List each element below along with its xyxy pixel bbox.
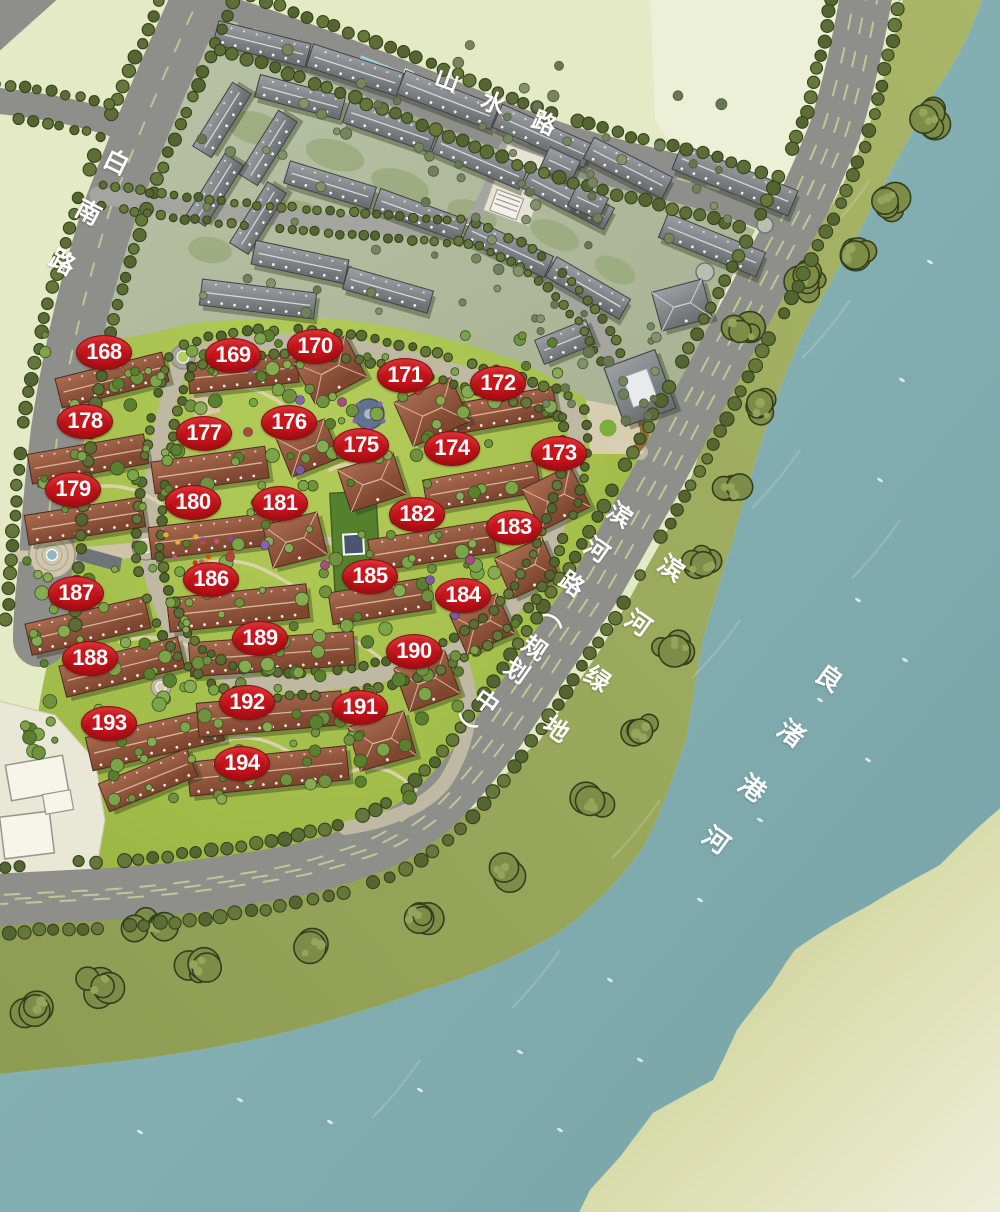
tree xyxy=(34,570,43,579)
tree xyxy=(353,612,362,621)
street-tree xyxy=(60,238,71,249)
street-tree xyxy=(122,64,135,77)
tree xyxy=(561,384,570,393)
tree xyxy=(319,569,329,579)
street-tree xyxy=(73,856,84,867)
tree xyxy=(716,99,727,110)
street-tree xyxy=(104,99,115,110)
tree xyxy=(234,753,242,761)
tree xyxy=(317,395,330,408)
tree xyxy=(261,520,270,529)
tree xyxy=(131,367,140,376)
street-tree xyxy=(158,562,169,573)
tree xyxy=(459,299,466,306)
tree xyxy=(239,660,252,673)
street-tree xyxy=(381,798,392,809)
street-tree xyxy=(69,208,80,219)
street-tree xyxy=(449,380,458,389)
tree xyxy=(327,351,335,359)
street-tree xyxy=(580,462,589,471)
street-tree xyxy=(627,446,640,459)
street-tree xyxy=(4,567,17,580)
street-tree xyxy=(815,50,826,61)
street-tree xyxy=(385,41,397,53)
street-tree xyxy=(574,499,583,508)
flower-bed xyxy=(228,550,233,555)
tree xyxy=(317,109,327,119)
tree xyxy=(487,235,496,244)
street-tree xyxy=(537,581,547,591)
tree xyxy=(174,506,181,513)
street-tree xyxy=(580,405,590,415)
street-tree xyxy=(618,458,631,471)
street-tree xyxy=(0,862,11,873)
street-tree xyxy=(132,514,141,523)
tree xyxy=(619,389,629,399)
street-tree xyxy=(516,372,526,382)
street-tree xyxy=(199,913,212,926)
street-tree xyxy=(796,267,810,281)
street-tree xyxy=(836,198,847,209)
tree xyxy=(552,368,562,378)
flower-bed xyxy=(216,576,221,581)
street-tree xyxy=(383,338,391,346)
street-tree xyxy=(432,348,442,358)
street-tree xyxy=(437,63,450,76)
street-tree xyxy=(11,496,22,507)
street-tree xyxy=(559,300,568,309)
street-tree xyxy=(145,189,153,197)
street-tree xyxy=(388,364,398,374)
street-tree xyxy=(531,594,541,604)
tree xyxy=(644,411,653,420)
street-tree xyxy=(679,490,691,502)
tree xyxy=(366,550,373,557)
street-tree xyxy=(179,385,187,393)
street-tree xyxy=(453,68,464,79)
flower-bed xyxy=(200,537,205,542)
street-tree xyxy=(808,76,820,88)
street-tree xyxy=(436,665,446,675)
tree xyxy=(493,264,504,275)
street-tree xyxy=(84,442,96,454)
tree xyxy=(399,739,412,752)
tree xyxy=(673,91,683,101)
tree xyxy=(251,499,259,507)
street-tree xyxy=(486,785,500,799)
tree xyxy=(124,399,137,412)
street-tree xyxy=(556,468,566,478)
street-tree xyxy=(538,381,549,392)
street-tree xyxy=(528,244,537,253)
street-tree xyxy=(192,79,206,93)
street-tree xyxy=(796,117,808,129)
street-tree xyxy=(180,215,189,224)
street-tree xyxy=(552,384,561,393)
tree xyxy=(128,794,136,802)
tree xyxy=(457,174,465,182)
street-tree xyxy=(395,654,404,663)
street-tree xyxy=(28,356,41,369)
street-tree xyxy=(280,349,289,358)
street-tree xyxy=(158,506,167,515)
street-tree xyxy=(702,454,713,465)
street-tree xyxy=(477,797,491,811)
street-tree xyxy=(680,207,692,219)
tree xyxy=(428,166,438,176)
tree-clump xyxy=(174,948,221,983)
street-tree xyxy=(443,239,450,246)
tree xyxy=(603,134,610,141)
street-tree xyxy=(504,589,514,599)
tree xyxy=(503,134,512,143)
tree xyxy=(302,757,311,766)
street-tree xyxy=(0,613,12,626)
tree xyxy=(456,492,464,500)
street-tree xyxy=(785,291,799,305)
tree xyxy=(386,530,395,539)
tree xyxy=(43,695,57,709)
street-tree xyxy=(169,432,178,441)
street-tree xyxy=(606,484,619,497)
street-tree xyxy=(665,518,676,529)
flower-bed xyxy=(205,572,210,577)
street-tree xyxy=(496,150,509,163)
tree xyxy=(355,776,366,787)
street-tree xyxy=(426,845,439,858)
flower-bed xyxy=(206,554,211,559)
tree xyxy=(581,311,587,317)
street-tree xyxy=(71,575,83,587)
flower-tree xyxy=(321,561,330,570)
street-tree xyxy=(128,50,142,64)
tree xyxy=(407,506,414,513)
tree xyxy=(344,735,355,746)
street-tree xyxy=(463,710,475,722)
tree xyxy=(145,368,152,375)
tree xyxy=(328,393,336,401)
street-tree xyxy=(307,326,317,336)
street-tree xyxy=(143,209,151,217)
street-tree xyxy=(156,543,164,551)
street-tree xyxy=(42,298,54,310)
tree xyxy=(371,245,380,254)
street-tree xyxy=(358,30,370,42)
tree xyxy=(149,564,157,572)
street-tree xyxy=(525,735,538,748)
street-tree xyxy=(213,910,227,924)
street-tree xyxy=(564,392,572,400)
street-tree xyxy=(153,915,167,929)
tree xyxy=(140,755,148,763)
street-tree xyxy=(545,570,555,580)
flower-bed xyxy=(163,532,168,537)
street-tree xyxy=(569,551,581,563)
tree xyxy=(43,573,52,582)
street-tree xyxy=(142,24,154,36)
street-tree xyxy=(437,745,449,757)
tree xyxy=(410,449,423,462)
street-tree xyxy=(585,337,594,346)
tree xyxy=(198,709,212,723)
street-tree xyxy=(19,401,32,414)
tree xyxy=(225,147,236,158)
tree xyxy=(266,362,280,376)
street-tree xyxy=(170,191,178,199)
tree xyxy=(40,346,51,357)
street-tree xyxy=(475,241,483,249)
street-tree xyxy=(188,363,197,372)
street-tree xyxy=(846,169,859,182)
street-tree xyxy=(274,900,287,913)
street-tree xyxy=(790,130,803,143)
tree xyxy=(52,737,58,743)
tree xyxy=(314,670,326,682)
tree xyxy=(231,458,239,466)
tree xyxy=(139,638,150,649)
street-tree xyxy=(487,248,494,255)
street-tree xyxy=(342,27,354,39)
tree xyxy=(376,308,383,315)
flower-tree xyxy=(246,364,255,373)
street-tree xyxy=(886,35,899,48)
street-tree xyxy=(80,472,92,484)
street-tree xyxy=(714,425,726,437)
street-tree xyxy=(252,202,261,211)
tree xyxy=(261,645,269,653)
street-tree xyxy=(503,624,511,632)
street-tree xyxy=(194,193,203,202)
tree xyxy=(110,461,124,475)
tree xyxy=(603,356,614,367)
tree xyxy=(157,372,165,380)
tree xyxy=(548,90,559,101)
street-tree xyxy=(270,62,281,73)
street-tree xyxy=(728,397,742,411)
street-tree xyxy=(320,328,328,336)
street-tree xyxy=(346,330,355,339)
tree xyxy=(309,745,321,757)
street-tree xyxy=(483,640,493,650)
street-tree xyxy=(537,252,545,260)
tree xyxy=(436,396,446,406)
street-tree xyxy=(521,626,532,637)
street-tree xyxy=(89,96,99,106)
street-tree xyxy=(75,513,88,526)
tree xyxy=(544,117,554,127)
street-tree xyxy=(515,569,525,579)
street-tree xyxy=(535,405,543,413)
street-tree xyxy=(43,118,54,129)
street-tree xyxy=(274,0,286,11)
tree xyxy=(110,759,123,772)
street-tree xyxy=(348,230,356,238)
street-tree xyxy=(132,554,141,563)
street-tree xyxy=(108,314,120,326)
street-tree xyxy=(163,147,174,158)
street-tree xyxy=(33,923,46,936)
tree xyxy=(537,315,545,323)
street-tree xyxy=(96,132,105,141)
tree-clump xyxy=(712,474,752,501)
street-tree xyxy=(356,330,366,340)
street-tree xyxy=(454,236,464,246)
street-tree xyxy=(818,35,831,48)
street-tree xyxy=(371,334,379,342)
street-tree xyxy=(191,215,200,224)
tree xyxy=(454,667,464,677)
street-tree xyxy=(580,474,588,482)
tree xyxy=(431,252,438,259)
street-tree xyxy=(421,347,431,357)
tree xyxy=(77,636,84,643)
street-tree xyxy=(70,126,79,135)
street-tree xyxy=(313,206,322,215)
tree xyxy=(309,715,323,729)
street-tree xyxy=(862,124,876,138)
street-tree xyxy=(334,329,342,337)
tree xyxy=(542,400,550,408)
street-tree xyxy=(193,337,201,345)
tree xyxy=(259,587,265,593)
street-tree xyxy=(492,87,503,98)
street-tree xyxy=(726,157,737,168)
tree xyxy=(261,657,275,671)
tree xyxy=(296,361,304,369)
street-tree xyxy=(463,74,476,87)
street-tree xyxy=(509,397,518,406)
street-tree xyxy=(694,209,706,221)
street-tree xyxy=(552,170,566,184)
street-tree xyxy=(404,649,414,659)
tree xyxy=(651,367,659,375)
tree xyxy=(354,754,367,767)
street-tree xyxy=(183,193,192,202)
street-tree xyxy=(611,335,621,345)
street-tree xyxy=(384,234,393,243)
tree xyxy=(588,192,596,200)
street-tree xyxy=(638,134,649,145)
street-tree xyxy=(819,225,833,239)
street-tree xyxy=(888,18,901,31)
tree xyxy=(715,167,722,174)
street-tree xyxy=(726,261,737,272)
street-tree xyxy=(298,690,307,699)
street-tree xyxy=(598,314,607,323)
street-tree xyxy=(129,244,140,255)
tree xyxy=(425,152,435,162)
street-tree xyxy=(25,373,39,387)
site-plan-map: 1681691701711721781771761751741731791801… xyxy=(0,0,1000,1212)
street-tree xyxy=(157,516,167,526)
street-tree xyxy=(124,183,133,192)
tree xyxy=(202,590,212,600)
street-tree xyxy=(177,848,188,859)
street-tree xyxy=(433,215,442,224)
street-tree xyxy=(539,167,550,178)
street-tree xyxy=(583,525,596,538)
tree xyxy=(184,680,196,692)
tree xyxy=(356,78,366,88)
tree xyxy=(180,498,192,510)
street-tree xyxy=(577,660,588,671)
street-tree xyxy=(105,327,117,339)
tree xyxy=(188,755,196,763)
street-tree xyxy=(337,886,350,899)
flower-tree xyxy=(426,576,435,585)
street-tree xyxy=(190,636,199,645)
street-tree xyxy=(507,257,516,266)
tree xyxy=(511,619,520,628)
street-tree xyxy=(97,201,106,210)
street-tree xyxy=(878,62,891,75)
street-tree xyxy=(55,121,64,130)
street-tree xyxy=(767,181,781,195)
street-tree xyxy=(496,596,505,605)
tree xyxy=(530,200,541,211)
street-tree xyxy=(369,36,382,49)
street-tree xyxy=(510,582,519,591)
tree xyxy=(183,619,190,626)
street-tree xyxy=(169,419,179,429)
tree xyxy=(457,406,470,419)
tree xyxy=(32,746,45,759)
tree xyxy=(710,202,718,210)
street-tree xyxy=(487,675,500,688)
street-tree xyxy=(563,563,576,576)
tree xyxy=(346,405,358,417)
street-tree xyxy=(318,823,331,836)
street-tree xyxy=(335,87,346,98)
tree xyxy=(354,732,363,741)
street-tree xyxy=(455,823,467,835)
tree xyxy=(415,712,428,725)
street-tree xyxy=(653,198,666,211)
street-tree xyxy=(257,351,266,360)
flower-bed xyxy=(228,536,233,541)
tree xyxy=(311,645,324,658)
street-tree xyxy=(872,93,884,105)
street-tree xyxy=(541,514,551,524)
tree xyxy=(208,394,222,408)
street-tree xyxy=(76,92,85,101)
street-tree xyxy=(60,91,69,100)
street-tree xyxy=(583,449,591,457)
street-tree xyxy=(697,146,709,158)
street-tree xyxy=(75,530,86,541)
street-tree xyxy=(328,20,340,32)
tree xyxy=(522,215,531,224)
tree xyxy=(58,625,70,637)
tree xyxy=(393,97,401,105)
street-tree xyxy=(456,134,469,147)
street-tree xyxy=(559,422,569,432)
street-tree xyxy=(277,203,286,212)
street-tree xyxy=(278,832,292,846)
street-tree xyxy=(69,618,82,631)
street-tree xyxy=(575,317,583,325)
tree xyxy=(308,481,319,492)
tree xyxy=(247,509,255,517)
street-tree xyxy=(612,126,623,137)
street-tree xyxy=(469,620,479,630)
tree-clump xyxy=(746,389,776,425)
tree xyxy=(647,323,654,330)
tree xyxy=(146,784,153,791)
tree xyxy=(340,619,353,632)
street-tree xyxy=(566,310,574,318)
tree xyxy=(306,526,313,533)
